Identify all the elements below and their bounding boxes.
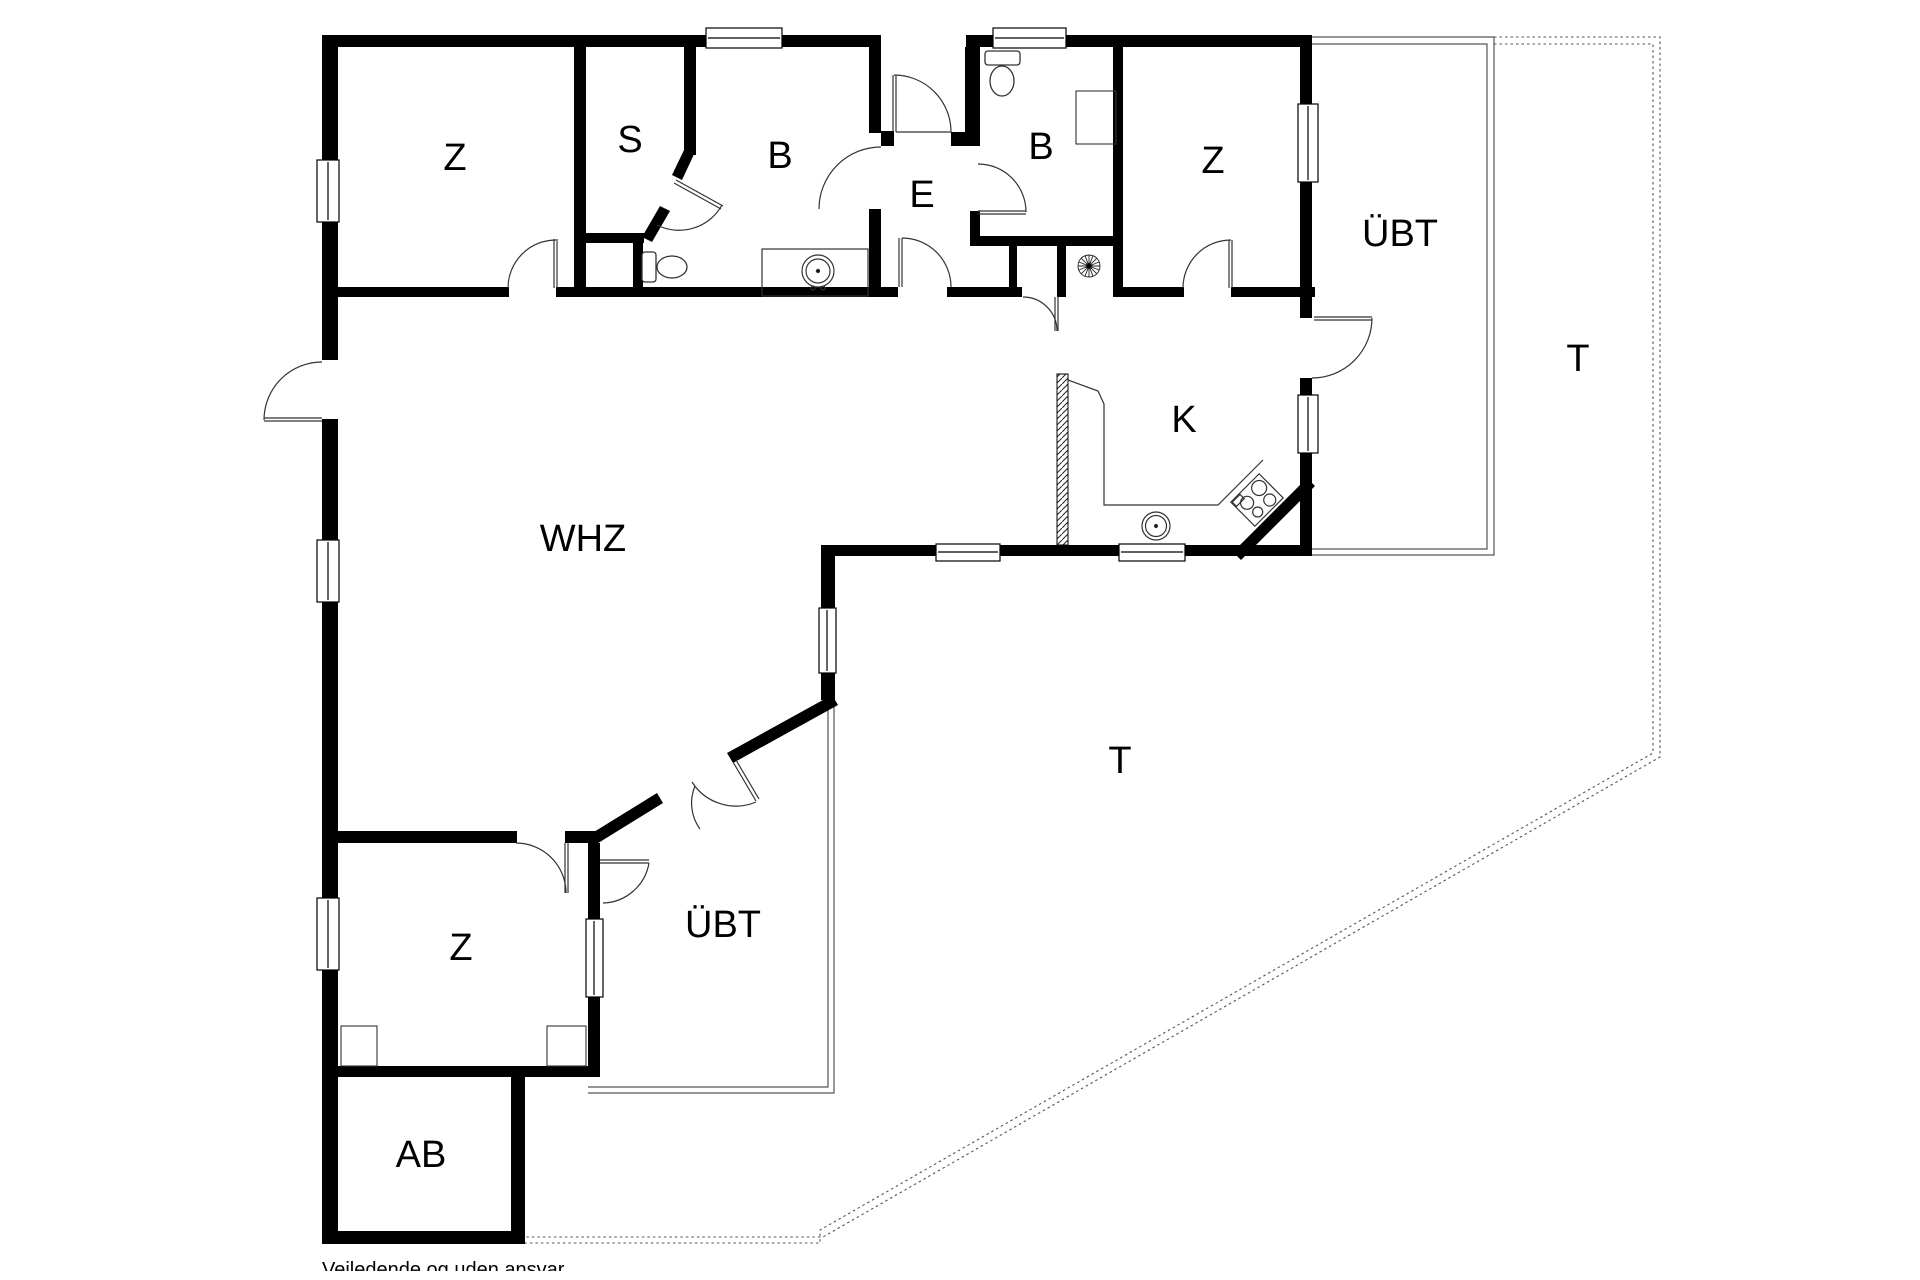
svg-text:ÜBT: ÜBT (685, 904, 761, 946)
svg-text:ÜBT: ÜBT (1362, 213, 1438, 255)
svg-text:AB: AB (396, 1134, 447, 1176)
svg-text:Z: Z (1201, 140, 1224, 182)
svg-text:B: B (1028, 126, 1053, 168)
svg-text:E: E (909, 174, 934, 216)
svg-text:K: K (1171, 399, 1196, 441)
svg-text:Z: Z (449, 927, 472, 969)
svg-text:S: S (617, 119, 642, 161)
svg-text:B: B (767, 135, 792, 177)
svg-text:T: T (1566, 338, 1589, 380)
svg-text:Z: Z (443, 137, 466, 179)
svg-text:T: T (1108, 740, 1131, 782)
svg-text:WHZ: WHZ (540, 518, 627, 560)
